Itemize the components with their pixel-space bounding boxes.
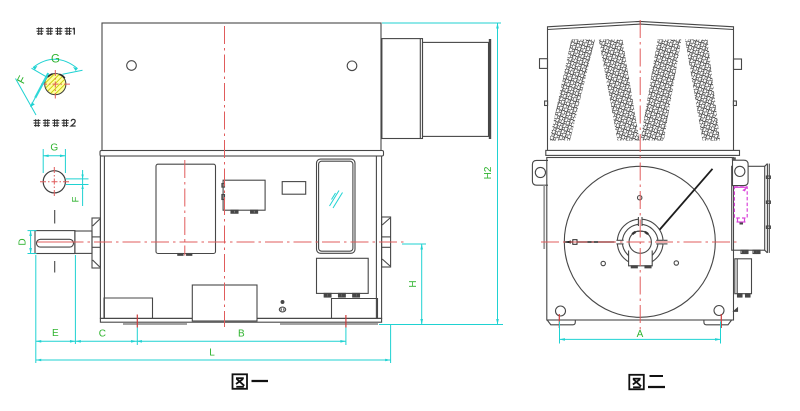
svg-text:C: C [99, 329, 106, 340]
svg-text:E: E [52, 328, 59, 339]
svg-text:G: G [51, 54, 60, 66]
svg-text:B: B [238, 329, 245, 340]
svg-text:F: F [71, 196, 82, 202]
svg-text:D: D [18, 238, 29, 245]
svg-text:A: A [637, 329, 644, 340]
svg-text:G: G [50, 143, 58, 154]
svg-text:L: L [209, 348, 215, 359]
svg-text:H: H [408, 280, 419, 287]
svg-text:H2: H2 [483, 166, 494, 179]
